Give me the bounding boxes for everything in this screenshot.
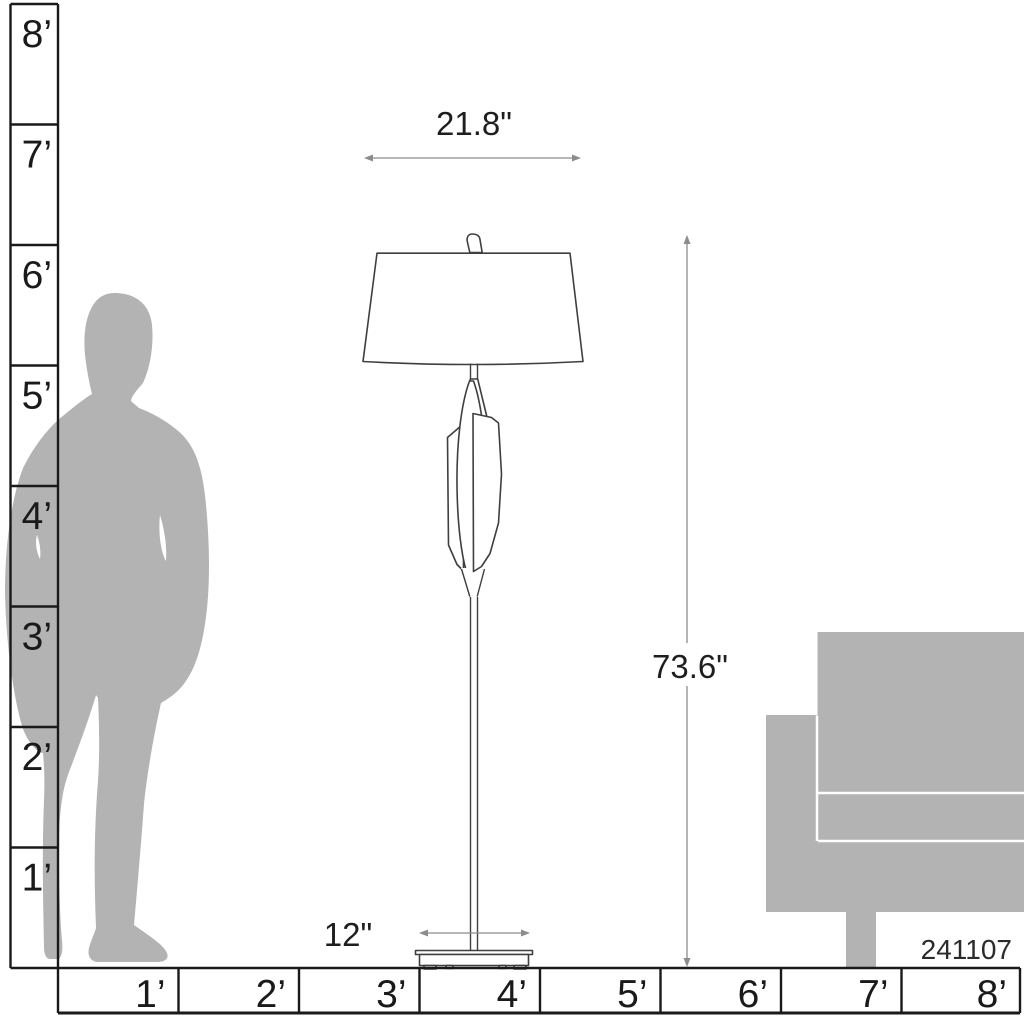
vertical-ruler-label: 6’ <box>22 254 52 297</box>
horizontal-ruler-label: 7’ <box>858 973 888 1016</box>
floor-lamp-drawing <box>363 234 583 969</box>
vertical-ruler-label: 1’ <box>22 857 52 900</box>
arrowhead-right-icon <box>521 930 530 937</box>
vertical-ruler-label: 8’ <box>22 13 52 56</box>
product-scale-diagram: 21.8" 73.6" 12" 8’ 7’ 6’ 5’ 4’ 3’ 2’ 1’ … <box>0 0 1024 1024</box>
overall-height-dimension: 73.6" <box>652 235 728 967</box>
horizontal-ruler-label: 4’ <box>497 973 527 1016</box>
lamp-shade <box>363 253 583 364</box>
horizontal-ruler-label: 3’ <box>376 973 406 1016</box>
vertical-ruler-label: 7’ <box>22 134 52 177</box>
horizontal-ruler-label: 1’ <box>135 973 165 1016</box>
sofa-body <box>818 632 1024 912</box>
sofa-arm <box>766 715 818 912</box>
lamp-finial <box>467 234 482 253</box>
base-width-label: 12" <box>324 916 372 953</box>
lamp-body-front-panel <box>473 414 502 572</box>
sofa-leg <box>846 912 876 967</box>
horizontal-ruler-label: 2’ <box>256 973 286 1016</box>
sofa-silhouette <box>766 632 1024 967</box>
shade-width-dimension: 21.8" <box>364 105 581 162</box>
horizontal-ruler-label: 6’ <box>738 973 768 1016</box>
vertical-ruler-label: 5’ <box>22 375 52 418</box>
base-width-dimension: 12" <box>324 916 530 953</box>
lamp-base-body <box>420 955 529 966</box>
vertical-ruler-label: 4’ <box>22 495 52 538</box>
horizontal-ruler-label: 8’ <box>977 973 1007 1016</box>
vertical-ruler-label: 2’ <box>22 736 52 779</box>
shade-width-label: 21.8" <box>436 105 512 142</box>
arrowhead-up-icon <box>684 235 691 244</box>
overall-height-label: 73.6" <box>652 648 728 685</box>
vertical-ruler-label: 3’ <box>22 616 52 659</box>
arrowhead-right-icon <box>572 155 581 162</box>
horizontal-ruler: 1’ 2’ 3’ 4’ 5’ 6’ 7’ 8’ <box>11 968 1021 1016</box>
arrowhead-left-icon <box>419 930 428 937</box>
horizontal-ruler-label: 5’ <box>617 973 647 1016</box>
product-model-number: 241107 <box>921 934 1012 965</box>
diagram-canvas: 21.8" 73.6" 12" 8’ 7’ 6’ 5’ 4’ 3’ 2’ 1’ … <box>0 0 1024 1024</box>
arrowhead-left-icon <box>364 155 373 162</box>
arrowhead-down-icon <box>684 958 691 967</box>
